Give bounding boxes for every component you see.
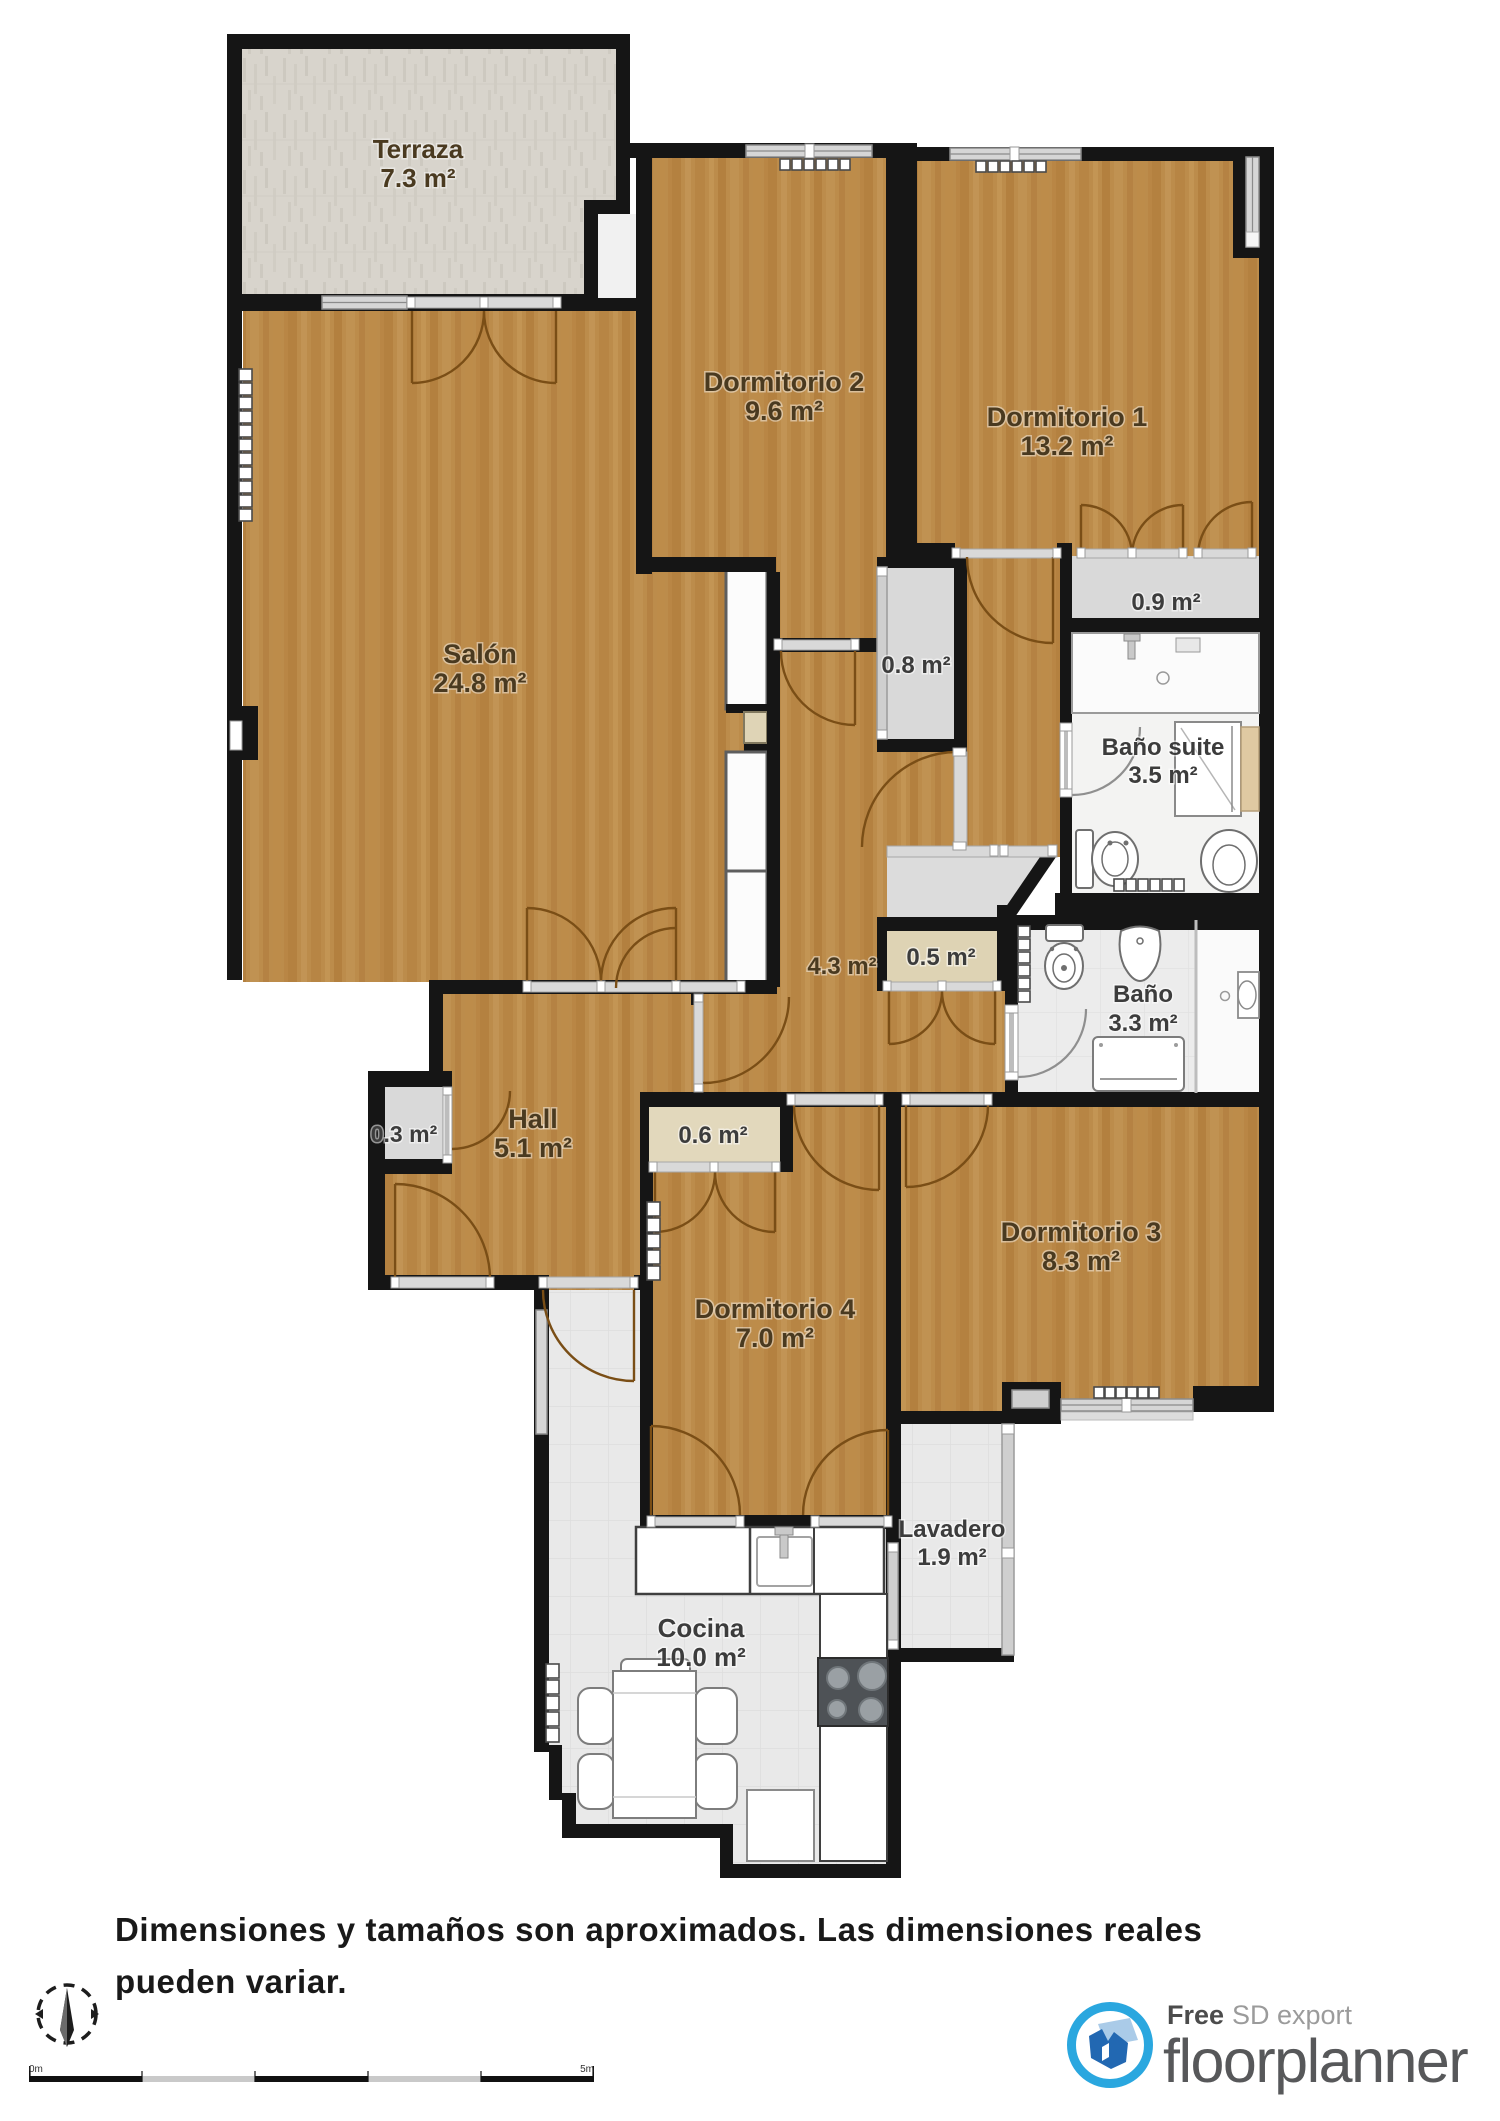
svg-text:0.9 m²: 0.9 m² [1131, 589, 1200, 616]
svg-text:1.9 m²: 1.9 m² [917, 1544, 986, 1571]
svg-text:Baño: Baño [1113, 981, 1173, 1008]
svg-text:Hall: Hall [508, 1104, 558, 1134]
svg-text:floorplanner: floorplanner [1163, 2027, 1468, 2095]
svg-text:3.5 m²: 3.5 m² [1128, 762, 1197, 789]
svg-text:Dormitorio 3: Dormitorio 3 [1001, 1217, 1162, 1247]
svg-text:5m: 5m [580, 2064, 594, 2075]
svg-text:Baño suite: Baño suite [1102, 734, 1225, 761]
svg-text:13.2 m²: 13.2 m² [1020, 431, 1113, 461]
svg-text:Terraza: Terraza [373, 134, 464, 164]
svg-text:Cocina: Cocina [658, 1613, 745, 1643]
svg-text:24.8 m²: 24.8 m² [433, 668, 526, 698]
svg-text:0.5 m²: 0.5 m² [906, 944, 975, 971]
svg-text:Dormitorio 1: Dormitorio 1 [987, 402, 1148, 432]
svg-text:7.0 m²: 7.0 m² [736, 1323, 814, 1353]
svg-text:Salón: Salón [443, 639, 517, 669]
svg-text:4.3 m²: 4.3 m² [807, 953, 876, 980]
svg-text:pueden variar.: pueden variar. [115, 1963, 347, 2000]
svg-text:Lavadero: Lavadero [899, 1516, 1006, 1543]
svg-text:Dormitorio 2: Dormitorio 2 [704, 367, 865, 397]
svg-text:5.1 m²: 5.1 m² [494, 1133, 572, 1163]
svg-text:0.8 m²: 0.8 m² [881, 652, 950, 679]
svg-text:8.3 m²: 8.3 m² [1042, 1246, 1120, 1276]
svg-text:7.3 m²: 7.3 m² [380, 163, 455, 193]
svg-text:10.0 m²: 10.0 m² [656, 1642, 746, 1672]
svg-text:9.6 m²: 9.6 m² [745, 396, 823, 426]
svg-text:Dimensiones y tamaños son apro: Dimensiones y tamaños son aproximados. L… [115, 1911, 1202, 1948]
svg-text:SD export: SD export [1232, 2000, 1353, 2030]
svg-text:0.6 m²: 0.6 m² [678, 1122, 747, 1149]
svg-text:3.3 m²: 3.3 m² [1108, 1010, 1177, 1037]
svg-text:0m: 0m [29, 2064, 43, 2075]
svg-text:0.3 m²: 0.3 m² [371, 1121, 438, 1147]
svg-text:Dormitorio 4: Dormitorio 4 [695, 1294, 856, 1324]
svg-text:Free: Free [1167, 2000, 1224, 2030]
